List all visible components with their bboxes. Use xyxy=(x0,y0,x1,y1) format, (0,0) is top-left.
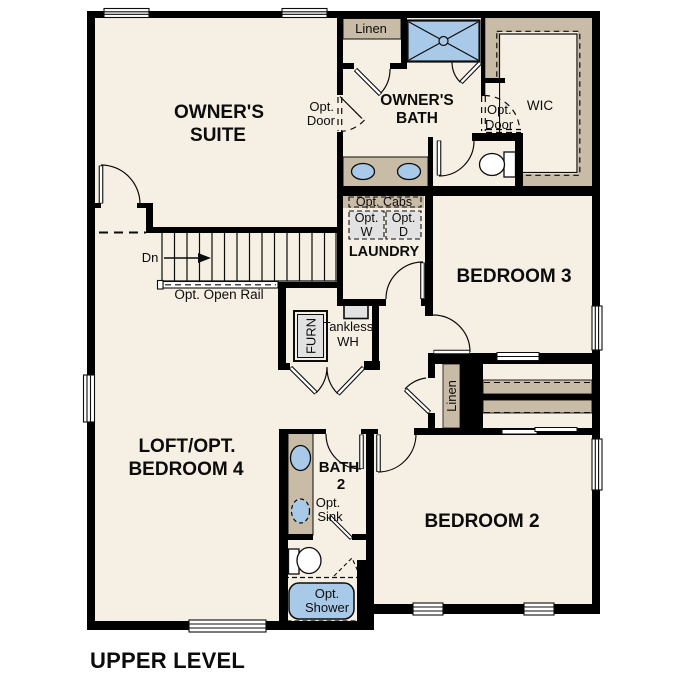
svg-text:BATH: BATH xyxy=(396,110,438,127)
svg-text:Opt. Open Rail: Opt. Open Rail xyxy=(174,287,263,302)
svg-text:Linen: Linen xyxy=(444,380,459,412)
svg-text:Linen: Linen xyxy=(355,21,387,36)
svg-text:UPPER LEVEL: UPPER LEVEL xyxy=(90,648,245,673)
svg-text:OWNER'S: OWNER'S xyxy=(174,102,264,123)
svg-text:D: D xyxy=(399,225,408,239)
svg-text:WIC: WIC xyxy=(527,98,553,113)
svg-text:Sink: Sink xyxy=(317,509,343,524)
svg-text:Tankless: Tankless xyxy=(323,319,374,334)
svg-text:BATH: BATH xyxy=(319,459,360,476)
svg-text:Shower: Shower xyxy=(305,600,350,615)
svg-text:BEDROOM 4: BEDROOM 4 xyxy=(128,459,244,480)
svg-text:FURN: FURN xyxy=(304,318,319,354)
svg-text:Door: Door xyxy=(307,113,336,128)
svg-text:2: 2 xyxy=(337,476,345,493)
svg-text:Opt.: Opt. xyxy=(309,99,334,114)
svg-text:Opt.: Opt. xyxy=(315,586,340,601)
svg-text:Opt.: Opt. xyxy=(487,102,512,117)
svg-text:Opt.: Opt. xyxy=(316,495,341,510)
svg-text:LAUNDRY: LAUNDRY xyxy=(349,244,420,260)
svg-text:SUITE: SUITE xyxy=(190,125,246,146)
svg-text:BEDROOM 3: BEDROOM 3 xyxy=(456,266,571,287)
svg-text:WH: WH xyxy=(337,334,359,349)
svg-text:LOFT/OPT.: LOFT/OPT. xyxy=(138,436,235,457)
svg-text:Opt. Cabs: Opt. Cabs xyxy=(356,195,412,209)
svg-text:Opt.: Opt. xyxy=(392,211,416,225)
svg-text:Dn: Dn xyxy=(142,250,159,265)
svg-text:W: W xyxy=(361,225,373,239)
svg-text:Door: Door xyxy=(485,117,514,132)
svg-text:OWNER'S: OWNER'S xyxy=(380,92,453,109)
svg-text:BEDROOM 2: BEDROOM 2 xyxy=(424,511,539,532)
svg-text:Opt.: Opt. xyxy=(355,211,379,225)
